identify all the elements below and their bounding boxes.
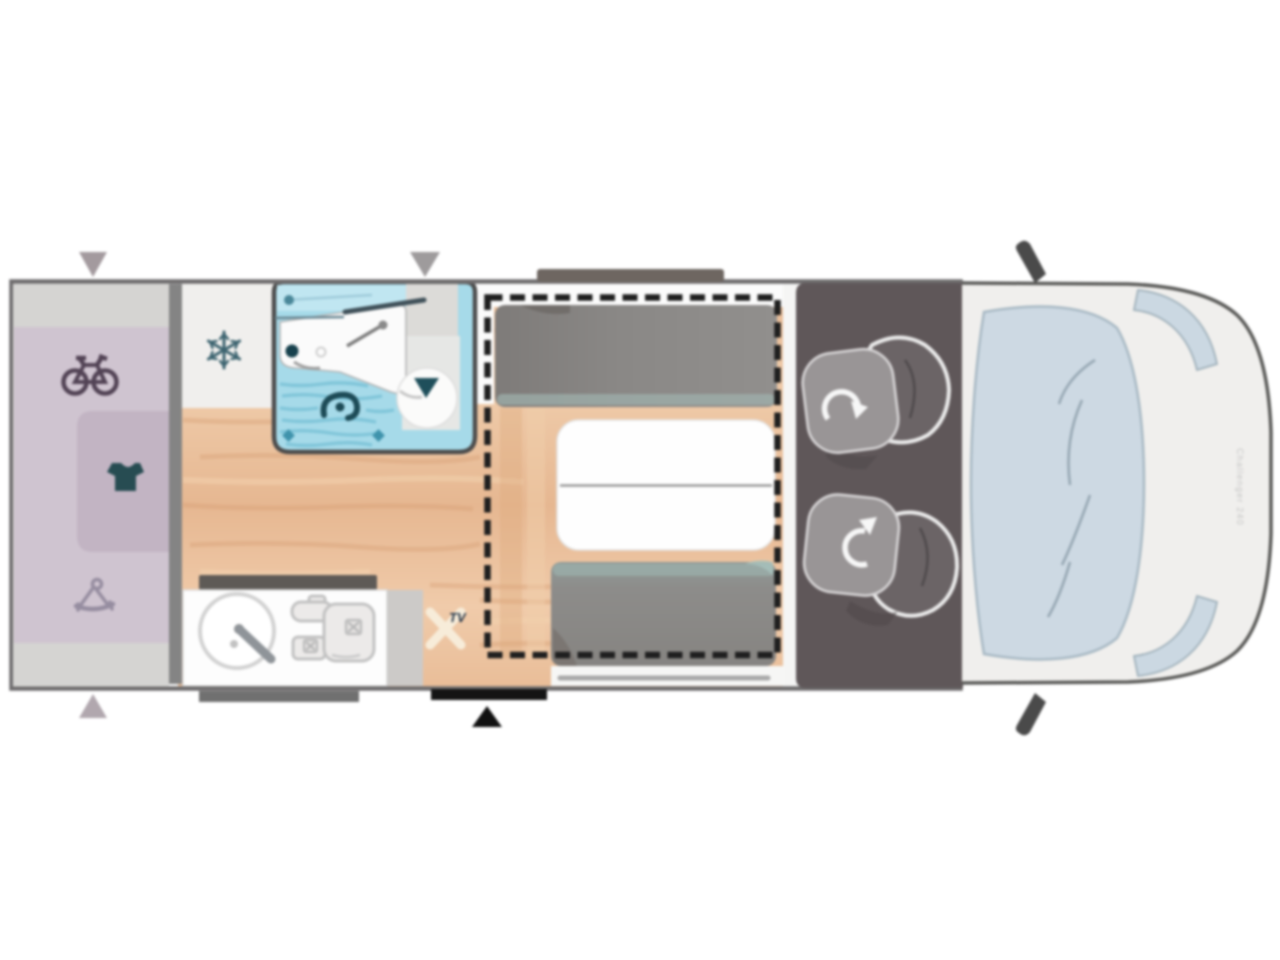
svg-text:Challenger 240: Challenger 240	[1235, 448, 1245, 526]
svg-text:TV: TV	[449, 610, 467, 625]
